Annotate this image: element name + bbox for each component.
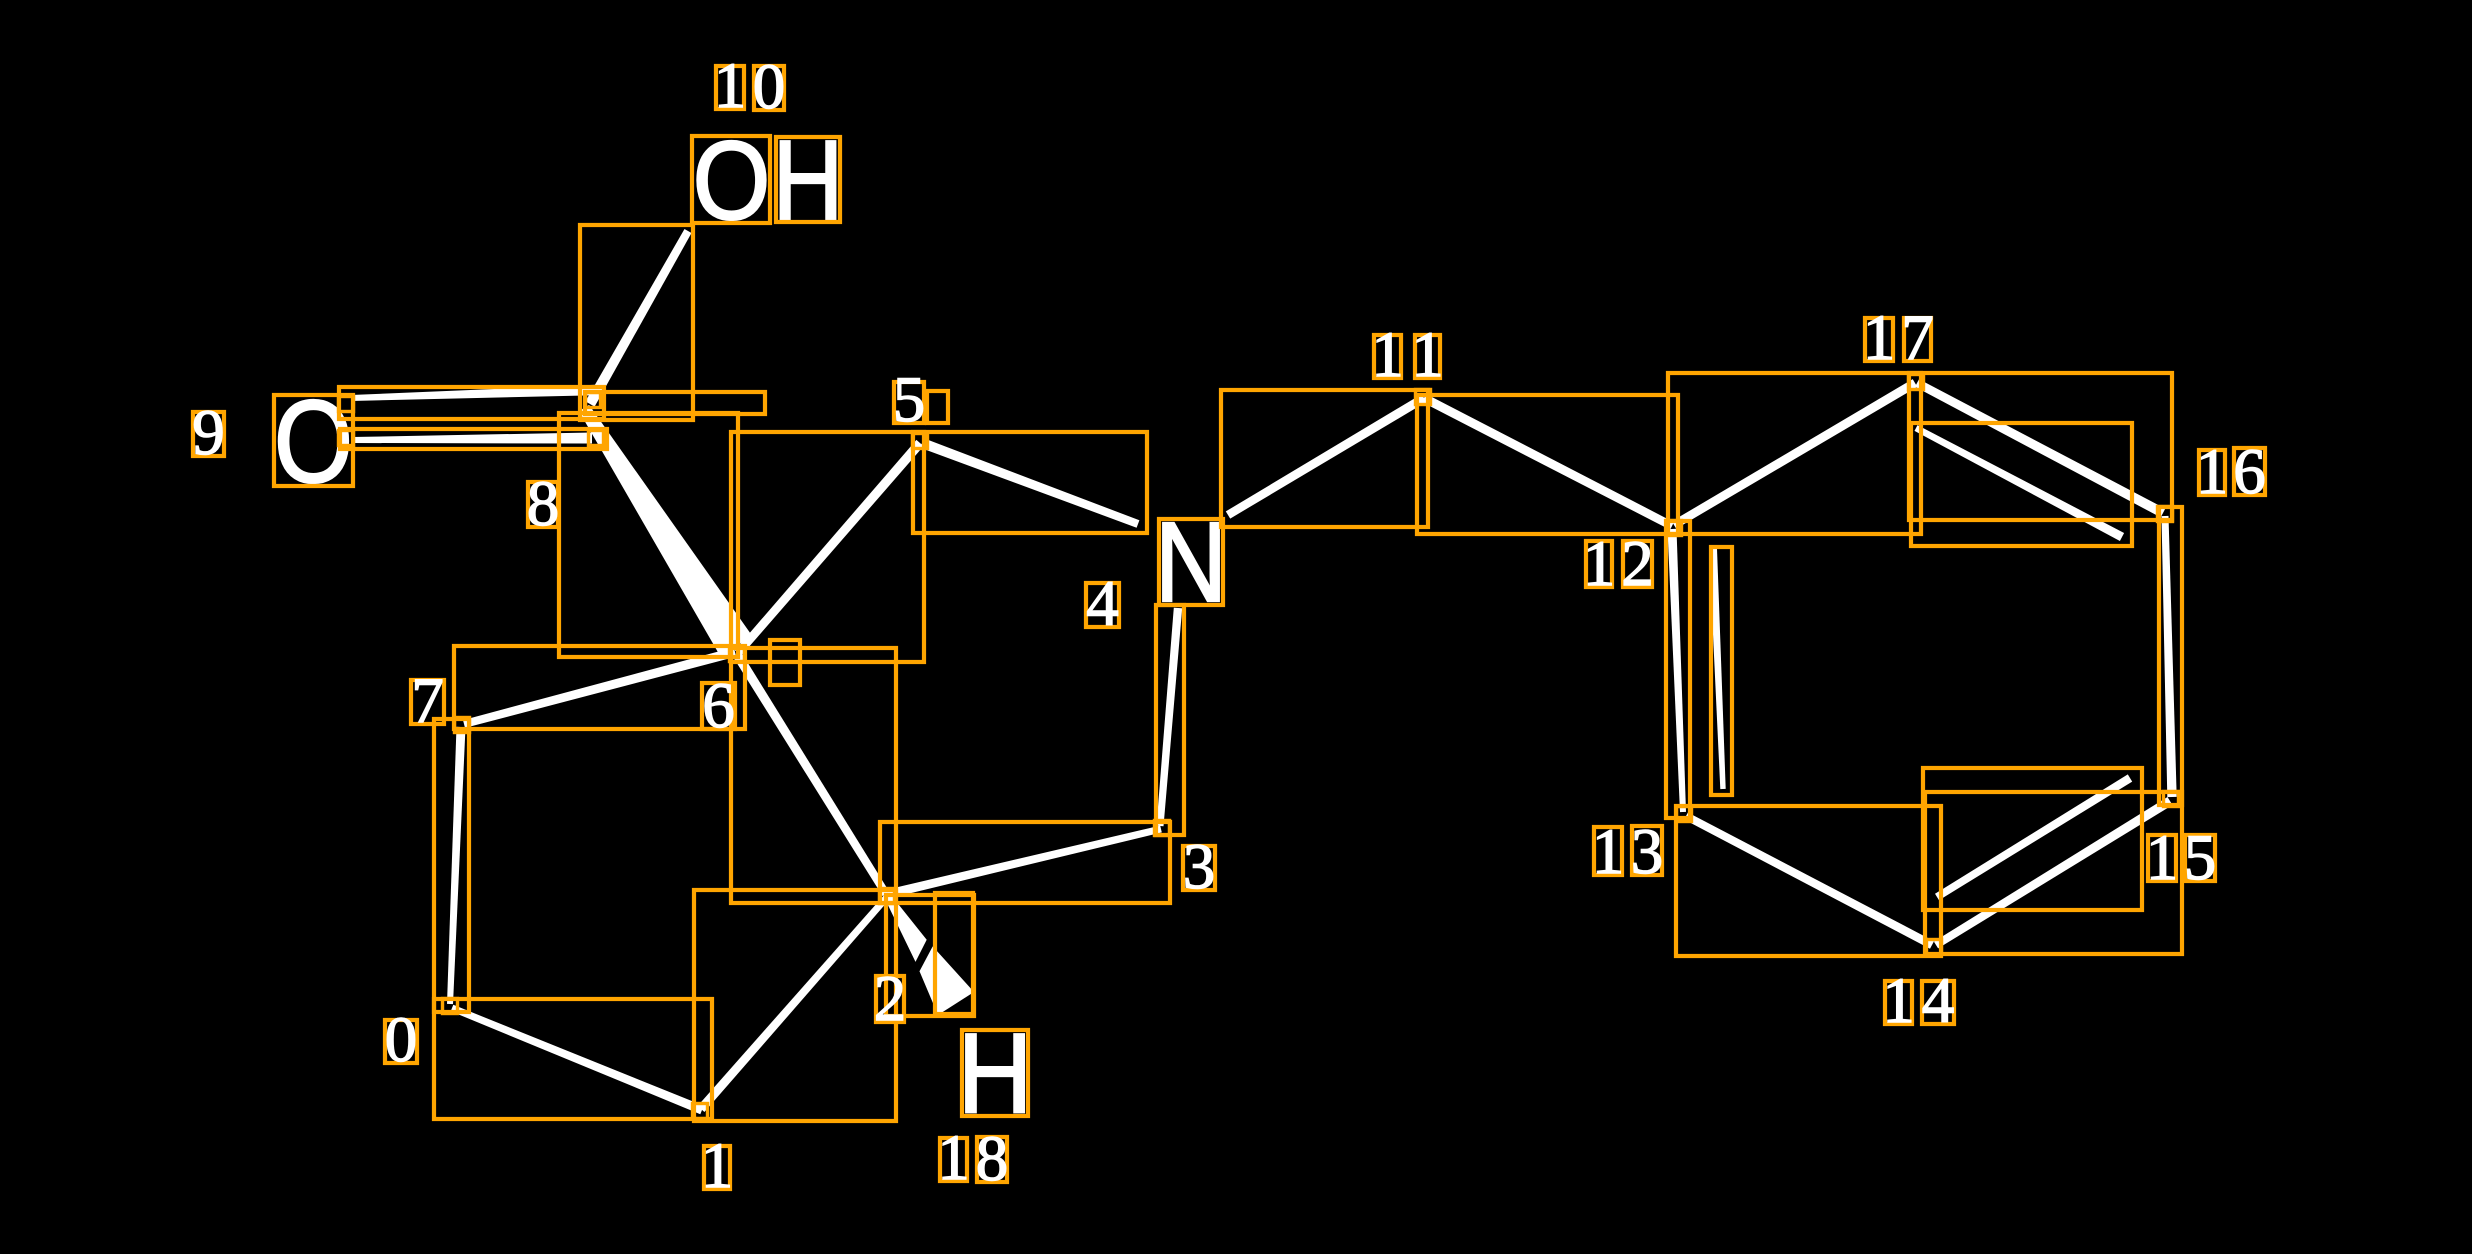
svg-text:1: 1	[2196, 436, 2229, 508]
svg-text:3: 3	[1631, 816, 1664, 888]
svg-text:9: 9	[192, 397, 225, 469]
svg-text:1: 1	[937, 1122, 970, 1194]
svg-text:0: 0	[385, 1004, 418, 1076]
svg-text:1: 1	[1592, 816, 1625, 888]
svg-text:1: 1	[1882, 965, 1915, 1037]
svg-text:0: 0	[753, 51, 786, 123]
svg-text:7: 7	[411, 665, 444, 737]
svg-text:3: 3	[1183, 831, 1216, 903]
svg-text:4: 4	[1086, 568, 1119, 640]
svg-text:2: 2	[874, 963, 907, 1035]
svg-text:6: 6	[2233, 436, 2266, 508]
svg-text:5: 5	[893, 364, 926, 436]
svg-text:1: 1	[2146, 822, 2179, 894]
svg-text:5: 5	[2184, 822, 2217, 894]
svg-text:4: 4	[1922, 965, 1955, 1037]
svg-text:8: 8	[976, 1123, 1009, 1195]
svg-text:2: 2	[1621, 528, 1654, 600]
svg-text:8: 8	[527, 468, 560, 540]
svg-text:1: 1	[714, 50, 747, 122]
svg-text:7: 7	[1901, 302, 1934, 374]
svg-text:1: 1	[701, 1130, 734, 1202]
svg-text:1: 1	[1411, 319, 1444, 391]
svg-text:1: 1	[1371, 319, 1404, 391]
svg-text:6: 6	[702, 670, 735, 742]
svg-text:1: 1	[1583, 528, 1616, 600]
svg-text:1: 1	[1863, 302, 1896, 374]
